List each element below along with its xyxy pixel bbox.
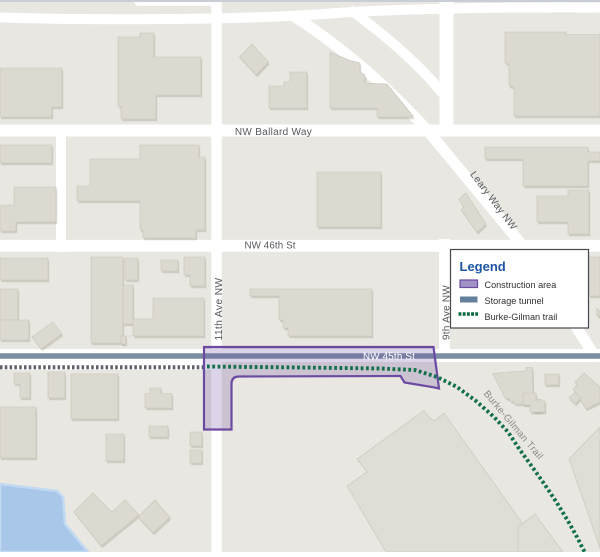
svg-text:NW Ballard Way: NW Ballard Way (235, 127, 312, 138)
svg-text:Construction area: Construction area (485, 280, 558, 290)
svg-text:Burke-Gilman trail: Burke-Gilman trail (485, 312, 558, 322)
svg-text:Legend: Legend (460, 259, 506, 274)
svg-text:NW 45th St: NW 45th St (363, 352, 415, 363)
svg-text:Storage tunnel: Storage tunnel (485, 296, 544, 306)
svg-text:NW 46th St: NW 46th St (244, 240, 295, 251)
svg-text:11th Ave NW: 11th Ave NW (214, 278, 225, 341)
